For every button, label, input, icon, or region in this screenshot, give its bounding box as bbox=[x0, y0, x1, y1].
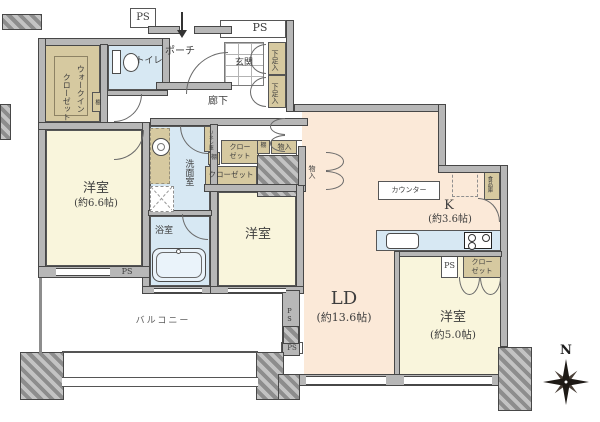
bedroom-small-label: 洋室 bbox=[422, 311, 484, 326]
stove-burner-icon bbox=[468, 234, 476, 242]
refrigerator-space bbox=[452, 170, 478, 197]
linen-label: リネン庫 bbox=[207, 128, 213, 152]
shoe-upper-label: 下足入 bbox=[271, 45, 279, 75]
kitchen-label: K bbox=[434, 199, 464, 214]
window-living-dining bbox=[306, 376, 386, 385]
closet-kitchen-l2: ゼット bbox=[463, 267, 501, 275]
ld-label: LD bbox=[314, 289, 374, 310]
closet-hall-upper-l1: クロー bbox=[221, 143, 259, 151]
bathtub-faucet-icon bbox=[176, 249, 181, 254]
wall bbox=[100, 44, 108, 126]
door-arc-toilet bbox=[114, 94, 142, 122]
wic-label-line1: ウォークイン bbox=[76, 60, 85, 118]
wall bbox=[294, 104, 446, 112]
wall bbox=[394, 251, 400, 378]
kitchen-size: (約3.6帖) bbox=[420, 214, 480, 226]
storage-hall-label: 物入 bbox=[271, 143, 298, 151]
storage-ld-label: 物入 bbox=[308, 157, 316, 187]
washroom-counter bbox=[150, 128, 170, 184]
bedroom-main-size: (約6.6帖) bbox=[58, 198, 134, 210]
washing-machine-space bbox=[150, 186, 174, 212]
wall bbox=[438, 165, 508, 173]
ps-label-bedroom-main: PS bbox=[114, 267, 140, 276]
door-arc-ld-entry-1 bbox=[270, 118, 285, 135]
closet-kitchen-l1: クロー bbox=[463, 258, 501, 266]
wall bbox=[394, 251, 502, 257]
wic-label-line2: クローゼット bbox=[62, 68, 71, 126]
ld-size: (約13.6帖) bbox=[308, 312, 380, 325]
wall bbox=[148, 26, 180, 34]
wall bbox=[438, 104, 446, 173]
window-bedroom-small bbox=[404, 376, 492, 385]
wall-stub-top-left bbox=[2, 14, 42, 30]
toilet-label: トイレ bbox=[132, 56, 166, 66]
wall-stub-left bbox=[0, 104, 11, 140]
balcony-railing bbox=[62, 377, 258, 387]
shelf-hall-label: 棚 bbox=[209, 155, 219, 162]
kitchen-sink-icon bbox=[386, 233, 419, 249]
wall bbox=[38, 38, 46, 278]
floor-plan: PS PS ポーチ トイレ 玄関 下足入 下足入 ウォークイン クローゼット 棚… bbox=[0, 0, 600, 422]
pantry-label: 食品庫 bbox=[486, 171, 492, 198]
ps-label-top-right: PS bbox=[230, 22, 290, 35]
wall bbox=[298, 146, 306, 186]
wic-shelf-label: 棚 bbox=[93, 96, 100, 108]
washbasin-drain-icon bbox=[157, 143, 165, 151]
wall bbox=[194, 26, 232, 34]
balcony-label: バルコニー bbox=[118, 316, 208, 326]
ps-label-wall-vertical: PS bbox=[285, 303, 292, 327]
entry-arrow-line bbox=[181, 12, 183, 30]
window-bedroom-main bbox=[56, 268, 110, 276]
balcony-left-edge bbox=[39, 278, 42, 354]
stove-burner-icon bbox=[482, 234, 490, 242]
closet-hall-lower-label: クローゼット bbox=[205, 171, 257, 180]
compass-north-label: N bbox=[540, 344, 592, 359]
bathtub-inner-line bbox=[156, 252, 202, 278]
pillar-ld-left bbox=[278, 374, 300, 400]
counter-label: カウンター bbox=[378, 186, 440, 194]
ps-label-balcony: PS bbox=[281, 344, 303, 352]
toilet-tank-icon bbox=[112, 50, 121, 74]
entrance-label: 玄関 bbox=[226, 58, 262, 68]
bedroom-small-size: (約5.0帖) bbox=[416, 329, 490, 341]
door-arc-porch bbox=[186, 52, 228, 94]
wall bbox=[204, 184, 306, 192]
wall bbox=[142, 122, 150, 288]
bedroom-main-label: 洋室 bbox=[64, 182, 128, 197]
entry-arrow-icon bbox=[177, 30, 187, 38]
ps-label-top-left: PS bbox=[130, 12, 156, 24]
compass-rose-icon bbox=[543, 359, 589, 405]
wall bbox=[38, 122, 148, 130]
balcony-boundary-line bbox=[62, 351, 258, 353]
washroom-label: 洗面室 bbox=[183, 152, 193, 192]
window-bathroom bbox=[154, 288, 202, 293]
bedroom-center-label: 洋室 bbox=[226, 228, 290, 243]
pillar-balcony-left bbox=[20, 352, 64, 400]
pillar-bottom-right bbox=[498, 347, 532, 411]
wall-hatch-ps bbox=[283, 326, 299, 344]
stove-burner-icon bbox=[468, 242, 476, 250]
wall bbox=[296, 184, 304, 292]
shelf-small-label: 棚 bbox=[258, 143, 269, 150]
corridor-label: 廊下 bbox=[198, 96, 238, 108]
closet-hall-upper-l2: ゼット bbox=[221, 152, 259, 160]
compass: N bbox=[540, 344, 592, 408]
bathroom-label: 浴室 bbox=[146, 226, 182, 236]
ps-label-kitchen: PS bbox=[441, 261, 458, 270]
window-bedroom-center bbox=[228, 288, 286, 293]
shoe-lower-label: 下足入 bbox=[271, 78, 279, 108]
